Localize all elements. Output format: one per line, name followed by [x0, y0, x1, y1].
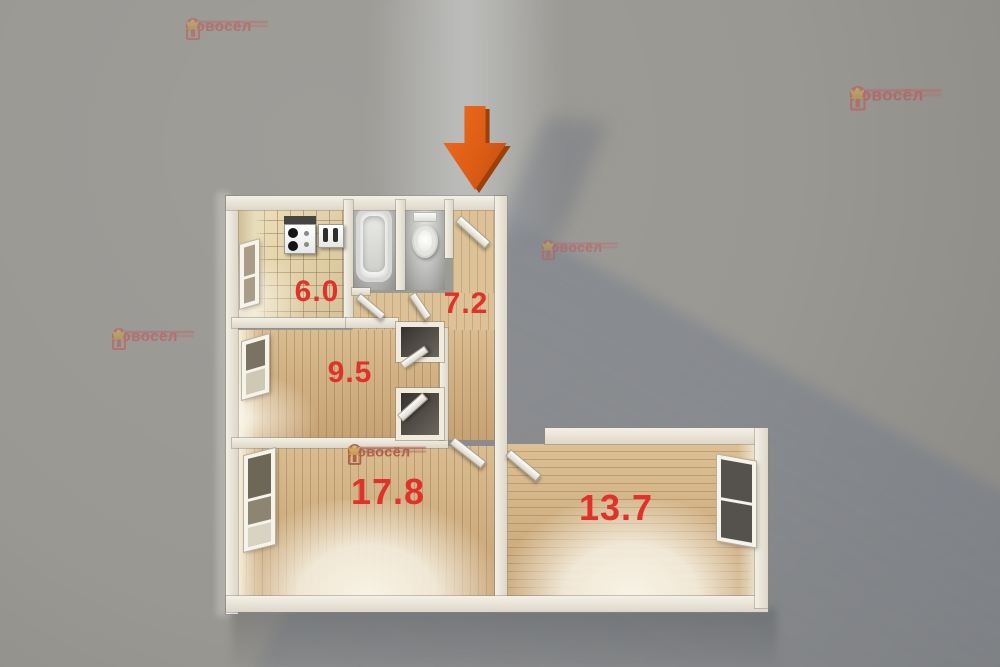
living-room-glow	[238, 500, 498, 598]
wall-outer-top	[226, 196, 505, 210]
stove-burner	[288, 228, 298, 238]
wall-outer-left	[226, 196, 238, 614]
under-wall-shadow	[232, 608, 777, 667]
area-label-living-room: 17.8	[351, 471, 425, 513]
area-label-room-9-5: 9.5	[328, 356, 373, 390]
wall-bath-toilet	[396, 200, 405, 290]
window-bar	[244, 273, 255, 279]
bathtub-well	[363, 216, 385, 272]
wall-outer-right	[755, 428, 768, 608]
wall-kitchen-bottom	[232, 318, 346, 328]
wall-hall-stub	[346, 318, 398, 328]
stove-knob	[304, 242, 309, 247]
entrance-arrow	[442, 106, 508, 190]
wall-bedroom-top	[545, 428, 757, 444]
wall-kitchen-right	[344, 200, 353, 326]
kitchen-window	[240, 239, 259, 308]
window-bar	[721, 497, 752, 505]
stove-knob	[304, 231, 309, 236]
wall-center-vertical	[495, 196, 507, 608]
wall-outer-bottom	[226, 596, 768, 612]
area-label-bedroom: 13.7	[579, 487, 653, 529]
floorplan-render: 6.0 7.2 9.5 17.8 13.7 новосёл новосёл но…	[0, 0, 1000, 667]
room-9-5-window	[242, 334, 269, 400]
sink-basin	[333, 228, 338, 242]
kitchen-sink	[318, 224, 344, 248]
living-room-window	[244, 448, 275, 552]
bedroom-window	[717, 455, 756, 548]
arrow-down-icon	[442, 106, 508, 190]
area-label-kitchen: 6.0	[295, 275, 340, 309]
stove-burner	[288, 241, 298, 251]
area-label-hallway: 7.2	[444, 287, 489, 321]
toilet-tank	[413, 212, 437, 222]
toilet-bowl	[412, 224, 438, 258]
wall-toilet-right	[445, 200, 453, 258]
sink-basin	[323, 228, 328, 242]
